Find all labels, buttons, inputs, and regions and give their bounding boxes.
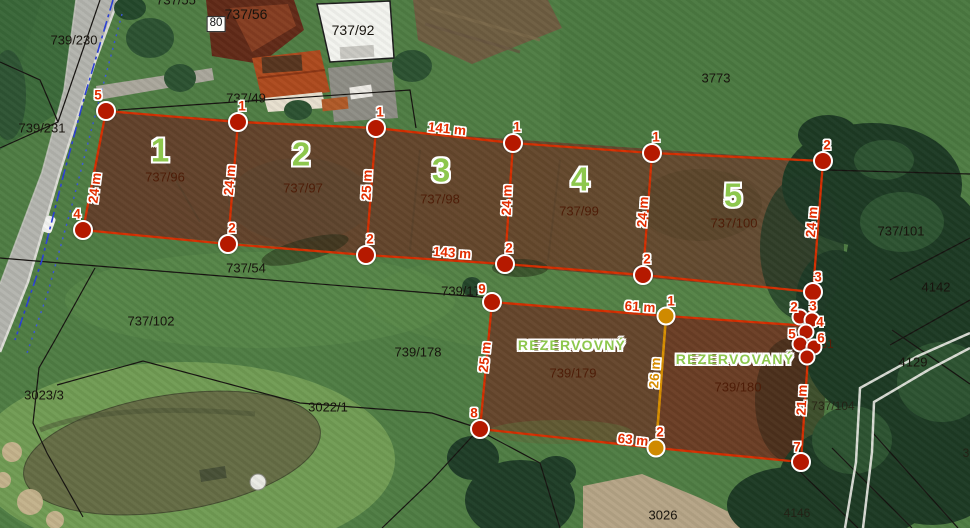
map-label-4146-19: 4146 <box>784 507 811 519</box>
map-label-737-92-5: 737/92 <box>332 23 375 37</box>
vertex-label-2-10: 2 <box>643 252 651 266</box>
vertex-label-4-6: 4 <box>73 207 81 221</box>
vertex-label-2-9: 2 <box>505 241 513 255</box>
vertex-dot-4-6[interactable] <box>73 220 93 240</box>
vertex-dot-5-0[interactable] <box>96 101 116 121</box>
map-label-2-30[interactable]: 2 <box>292 138 310 171</box>
map-label-737-56-3: 737/56 <box>225 7 268 21</box>
vertex-dot-1-1[interactable] <box>228 112 248 132</box>
vertex-dot-1-15[interactable] <box>657 307 676 326</box>
vertex-dot-2-5[interactable] <box>813 151 833 171</box>
vertex-label-5-20: 5 <box>788 327 796 341</box>
map-label-737-55-2: 737/55 <box>156 0 196 7</box>
map-label-737-104-17: 737/104 <box>811 400 854 412</box>
vertex-label-1-3: 1 <box>513 120 521 134</box>
vertex-dot-1-3[interactable] <box>503 133 523 153</box>
map-label-rezervovan-35[interactable]: REZERVOVANÝ <box>676 352 794 366</box>
map-label-737-54-8: 737/54 <box>226 262 266 275</box>
map-label-4129-16: 4129 <box>899 356 928 369</box>
map-label-739-179-26: 739/179 <box>550 367 597 380</box>
vertex-label-1-2: 1 <box>376 105 384 119</box>
vertex-label-6-21: 6 <box>817 331 825 345</box>
vertex-label-2-17: 2 <box>790 300 798 314</box>
dimension-label-63-m-10: 63 m <box>617 432 649 449</box>
vertex-dot-1-4[interactable] <box>642 143 662 163</box>
vertex-label-1-15: 1 <box>667 294 675 308</box>
map-label-737-96-21: 737/96 <box>145 171 185 184</box>
dimension-label-24-m-3: 24 m <box>500 184 515 215</box>
vertex-label-3-18: 3 <box>809 299 817 313</box>
vertex-label-5-0: 5 <box>94 88 102 102</box>
dimension-label-141-m-6: 141 m <box>427 120 466 137</box>
vertex-label-9-12: 9 <box>478 282 486 296</box>
map-label-1-29[interactable]: 1 <box>151 134 169 167</box>
map-label-737-101-14: 737/101 <box>878 225 925 238</box>
map-label-80-4: 80 <box>207 16 226 32</box>
vertex-dot-2-8[interactable] <box>356 245 376 265</box>
vertex-label-7-14: 7 <box>793 440 801 454</box>
dimension-label-61-m-9: 61 m <box>624 299 656 315</box>
map-label-739-180-27: 739/180 <box>715 381 762 394</box>
dimension-label-21-m-11: 21 m <box>794 384 809 415</box>
dimension-label-26-m-12: 26 m <box>647 357 663 389</box>
vertex-label-2-7: 2 <box>228 221 236 235</box>
vertex-dot-7-14[interactable] <box>791 452 811 472</box>
map-canvas[interactable]: 739/230739/231737/55737/5680737/92737/49… <box>0 0 970 528</box>
map-label-737-102-9: 737/102 <box>128 315 175 328</box>
map-label-737-99-24: 737/99 <box>559 205 599 218</box>
vertex-dot-1-2[interactable] <box>366 118 386 138</box>
map-label-3023-3-10: 3023/3 <box>24 389 64 402</box>
map-annotation-layer: 739/230739/231737/55737/5680737/92737/49… <box>0 0 970 528</box>
map-label-739-231-1: 739/231 <box>19 122 66 135</box>
vertex-label-2-5: 2 <box>823 138 831 152</box>
map-label-4142-15: 4142 <box>922 281 951 294</box>
vertex-label-1-1: 1 <box>238 99 246 113</box>
map-label-3026-18: 3026 <box>649 509 678 522</box>
map-label-3-20: 3 <box>963 447 970 459</box>
dimension-label-143-m-7: 143 m <box>432 245 471 261</box>
vertex-label-2-16: 2 <box>656 425 664 439</box>
map-label-737-100-25: 737/100 <box>711 217 758 230</box>
vertex-label-4-19: 4 <box>816 315 824 329</box>
vertex-label-8-13: 8 <box>470 406 478 420</box>
vertex-label-2-8: 2 <box>366 232 374 246</box>
dimension-label-24-m-5: 24 m <box>804 206 820 238</box>
map-label-3773-7: 3773 <box>702 72 731 85</box>
dimension-label-24-m-4: 24 m <box>635 196 651 228</box>
vertex-label-1-4: 1 <box>652 130 660 144</box>
map-label-739-178-12: 739/178 <box>395 346 442 359</box>
map-label-3022-1-11: 3022/1 <box>308 401 348 414</box>
vertex-dot-8-13[interactable] <box>470 419 490 439</box>
map-label-rezervovn-34[interactable]: REZERVOVNÝ <box>518 338 626 352</box>
vertex-dot-x-22[interactable] <box>799 349 816 366</box>
vertex-dot-2-9[interactable] <box>495 254 515 274</box>
dimension-label-24-m-0: 24 m <box>86 172 103 204</box>
dimension-label-25-m-2: 25 m <box>359 169 374 200</box>
map-label-739-230-0: 739/230 <box>51 34 98 47</box>
map-label-5-33[interactable]: 5 <box>724 179 742 212</box>
dimension-label-25-m-8: 25 m <box>477 341 494 373</box>
map-label-739-17-13: 739/17 <box>441 285 481 298</box>
vertex-dot-2-7[interactable] <box>218 234 238 254</box>
map-label-737-98-23: 737/98 <box>420 193 460 206</box>
map-label-3-31[interactable]: 3 <box>432 154 450 187</box>
vertex-dot-2-16[interactable] <box>647 439 666 458</box>
vertex-label-3-11: 3 <box>814 270 822 284</box>
map-label-737-97-22: 737/97 <box>283 182 323 195</box>
vertex-dot-2-10[interactable] <box>633 265 653 285</box>
map-label-4-32[interactable]: 4 <box>571 163 589 196</box>
dimension-label-24-m-1: 24 m <box>222 164 238 196</box>
